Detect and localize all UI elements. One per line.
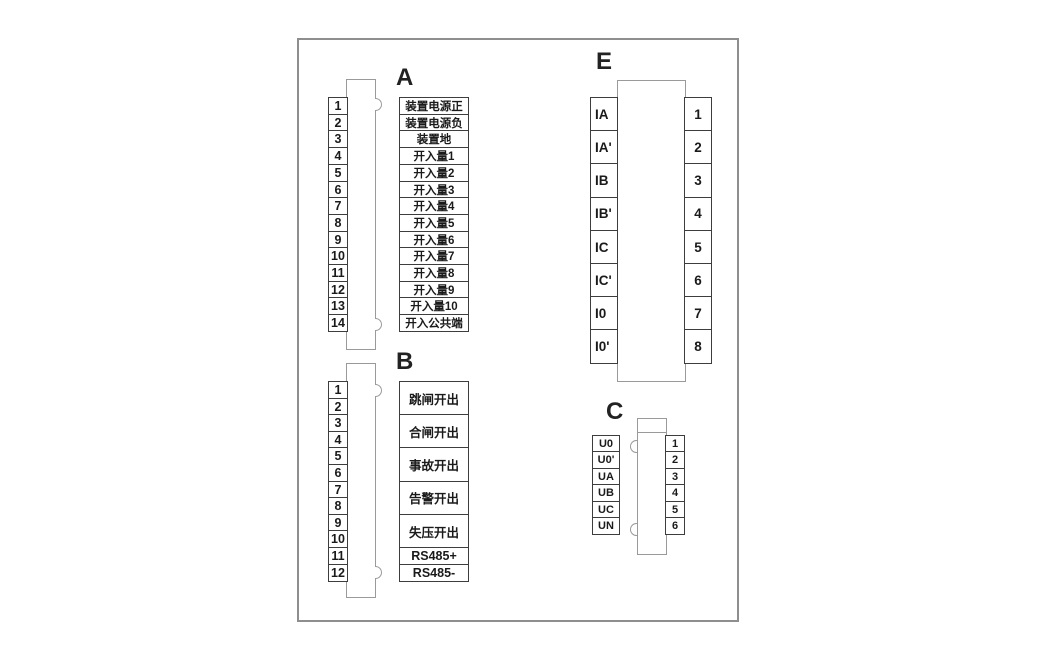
terminal-label: 装置电源负 [399, 114, 469, 132]
connector-e-title: E [596, 50, 612, 74]
terminal-label: IB' [590, 197, 618, 232]
terminal-label: UN [592, 517, 620, 535]
terminal-label: 跳闸开出 [399, 381, 469, 416]
connector-a-pin-labels: 装置电源正装置电源负装置地开入量1开入量2开入量3开入量4开入量5开入量6开入量… [399, 97, 469, 332]
terminal-label: IA' [590, 130, 618, 165]
connector-b-output-labels: 跳闸开出合闸开出事故开出告警开出失压开出RS485+RS485- [399, 381, 469, 582]
terminal-wiring-diagram: A 1234567891011121314 装置电源正装置电源负装置地开入量1开… [0, 0, 1063, 647]
terminal-number: 8 [684, 329, 712, 364]
terminal-number: 4 [684, 197, 712, 232]
connector-e-pin-numbers: 12345678 [684, 97, 712, 364]
connector-b-title: B [396, 350, 413, 374]
terminal-number: 13 [328, 297, 348, 315]
terminal-number: 6 [328, 181, 348, 199]
terminal-label: U0 [592, 435, 620, 453]
terminal-number: 3 [328, 414, 348, 432]
connector-a-title: A [396, 66, 413, 90]
terminal-number: 2 [328, 398, 348, 416]
terminal-number: 9 [328, 231, 348, 249]
terminal-label: 开入量2 [399, 164, 469, 182]
terminal-number: 11 [328, 547, 348, 565]
terminal-number: 3 [328, 130, 348, 148]
terminal-label: UC [592, 501, 620, 519]
terminal-label: IC [590, 230, 618, 265]
terminal-number: 5 [328, 164, 348, 182]
terminal-number: 5 [684, 230, 712, 265]
terminal-label: I0' [590, 329, 618, 364]
terminal-label: 开入量6 [399, 231, 469, 249]
terminal-label: 开入量1 [399, 147, 469, 165]
terminal-label: UA [592, 468, 620, 486]
terminal-label: 失压开出 [399, 514, 469, 549]
terminal-label: 开入量7 [399, 247, 469, 265]
connector-b-pin-numbers: 123456789101112 [328, 381, 348, 582]
terminal-number: 10 [328, 530, 348, 548]
terminal-number: 1 [684, 97, 712, 132]
terminal-label: RS485- [399, 564, 469, 582]
terminal-number: 12 [328, 564, 348, 582]
terminal-label: 开入量5 [399, 214, 469, 232]
connector-c-title: C [606, 400, 623, 424]
terminal-label: RS485+ [399, 547, 469, 565]
terminal-number: 12 [328, 281, 348, 299]
terminal-number: 7 [328, 481, 348, 499]
terminal-label: 开入量3 [399, 181, 469, 199]
terminal-number: 6 [328, 464, 348, 482]
terminal-label: 事故开出 [399, 447, 469, 482]
terminal-number: 4 [328, 147, 348, 165]
terminal-number: 6 [665, 517, 685, 535]
terminal-number: 3 [665, 468, 685, 486]
terminal-number: 8 [328, 497, 348, 515]
terminal-label: IA [590, 97, 618, 132]
terminal-number: 1 [328, 97, 348, 115]
terminal-number: 10 [328, 247, 348, 265]
terminal-number: 4 [665, 484, 685, 502]
connector-c-body-cap [637, 418, 667, 433]
terminal-number: 2 [684, 130, 712, 165]
terminal-number: 4 [328, 431, 348, 449]
terminal-label: 告警开出 [399, 481, 469, 516]
connector-c-body [637, 418, 667, 555]
connector-a-body [346, 79, 376, 350]
terminal-label: 开入公共端 [399, 314, 469, 332]
terminal-label: U0' [592, 451, 620, 469]
connector-c-pin-numbers: 123456 [665, 435, 685, 535]
terminal-label: 开入量9 [399, 281, 469, 299]
terminal-number: 14 [328, 314, 348, 332]
connector-e-signal-labels: IAIA'IBIB'ICIC'I0I0' [590, 97, 618, 364]
connector-c-signal-labels: U0U0'UAUBUCUN [592, 435, 620, 535]
terminal-number: 7 [328, 197, 348, 215]
terminal-label: 开入量8 [399, 264, 469, 282]
connector-c-notch-top [630, 440, 637, 453]
terminal-number: 5 [328, 447, 348, 465]
terminal-label: 装置地 [399, 130, 469, 148]
terminal-number: 6 [684, 263, 712, 298]
terminal-label: IB [590, 163, 618, 198]
terminal-label: 开入量10 [399, 297, 469, 315]
connector-a-pin-numbers: 1234567891011121314 [328, 97, 348, 332]
terminal-number: 5 [665, 501, 685, 519]
terminal-number: 1 [665, 435, 685, 453]
connector-c-notch-bottom [630, 523, 637, 536]
connector-e-body [617, 80, 686, 382]
terminal-number: 2 [665, 451, 685, 469]
terminal-label: IC' [590, 263, 618, 298]
terminal-number: 11 [328, 264, 348, 282]
terminal-number: 3 [684, 163, 712, 198]
terminal-label: 开入量4 [399, 197, 469, 215]
terminal-number: 8 [328, 214, 348, 232]
terminal-label: 装置电源正 [399, 97, 469, 115]
terminal-number: 9 [328, 514, 348, 532]
terminal-number: 1 [328, 381, 348, 399]
connector-b-body [346, 363, 376, 598]
terminal-label: 合闸开出 [399, 414, 469, 449]
terminal-number: 7 [684, 296, 712, 331]
terminal-label: UB [592, 484, 620, 502]
terminal-label: I0 [590, 296, 618, 331]
terminal-number: 2 [328, 114, 348, 132]
